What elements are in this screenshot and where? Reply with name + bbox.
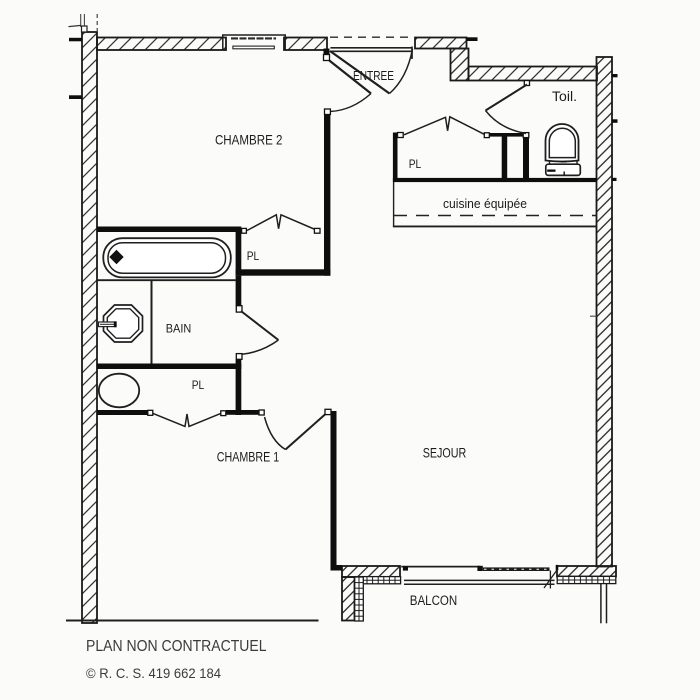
svg-text:cuisine équipée: cuisine équipée — [443, 196, 527, 211]
svg-text:Toil.: Toil. — [552, 89, 577, 104]
svg-text:PL: PL — [192, 380, 205, 392]
svg-text:© R. C. S. 419 662 184: © R. C. S. 419 662 184 — [86, 665, 221, 681]
svg-text:PL: PL — [247, 251, 260, 263]
svg-text:PL: PL — [409, 159, 422, 171]
svg-text:BAIN: BAIN — [166, 322, 192, 336]
svg-text:PLAN NON CONTRACTUEL: PLAN NON CONTRACTUEL — [86, 638, 267, 655]
svg-text:ENTREE: ENTREE — [353, 69, 394, 83]
svg-text:SEJOUR: SEJOUR — [423, 446, 467, 461]
svg-text:CHAMBRE 2: CHAMBRE 2 — [215, 133, 283, 148]
svg-text:BALCON: BALCON — [410, 593, 458, 608]
svg-text:CHAMBRE 1: CHAMBRE 1 — [217, 450, 280, 465]
